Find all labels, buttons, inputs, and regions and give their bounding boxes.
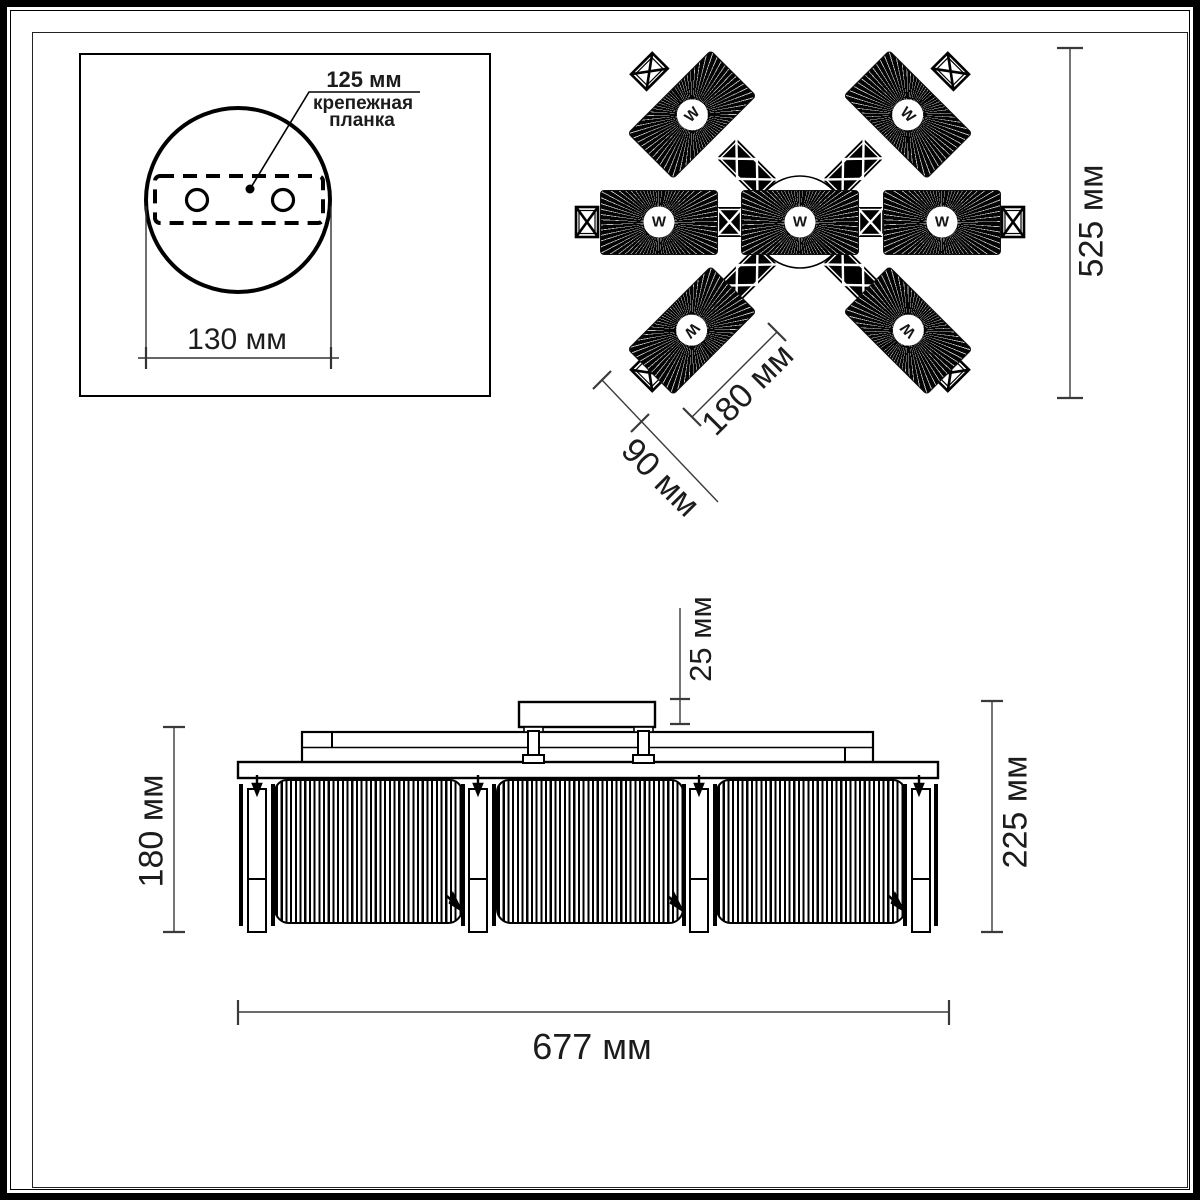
canopy-height-label: 25 мм bbox=[683, 596, 719, 682]
side-shade-height-label: 180 мм bbox=[133, 775, 172, 888]
top-view-width-label: 525 мм bbox=[1073, 165, 1112, 278]
hook-details bbox=[0, 0, 1200, 1200]
lower-hook-tip bbox=[450, 894, 461, 910]
total-height-label: 225 мм bbox=[997, 756, 1036, 869]
lower-hook-tip bbox=[892, 894, 903, 910]
hanger-hook-tip bbox=[474, 784, 482, 794]
hanger-hook-tip bbox=[695, 784, 703, 794]
plate-name-line2: планка bbox=[329, 110, 395, 132]
lower-hook-tip bbox=[671, 894, 682, 910]
base-diameter-label: 130 мм bbox=[187, 323, 287, 357]
overall-width-label: 677 мм bbox=[532, 1026, 652, 1068]
hanger-hook-tip bbox=[915, 784, 923, 794]
plate-length-label: 125 мм bbox=[326, 67, 401, 93]
hanger-hook-tip bbox=[253, 784, 261, 794]
dimension-drawing-page: W W W W W W W bbox=[0, 0, 1200, 1200]
